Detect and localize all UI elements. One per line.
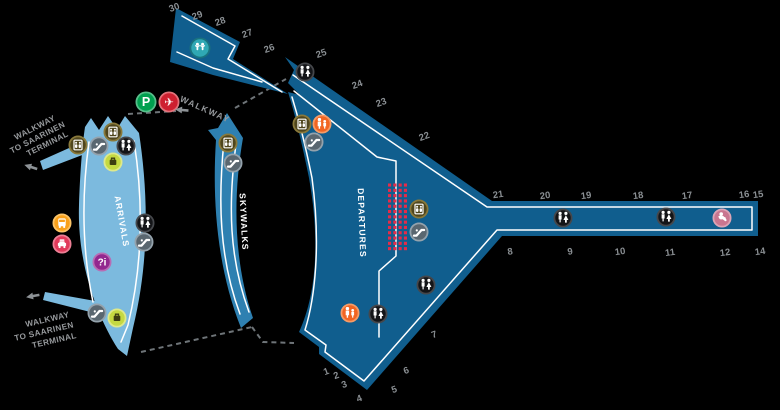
baggage-claim-icon (108, 309, 125, 326)
checkpoint-dot (388, 231, 391, 234)
checkpoint-dot (399, 184, 402, 187)
gate-number-12: 12 (719, 247, 731, 259)
checkpoint-dot (393, 189, 396, 192)
elevator-icon-circle (219, 134, 236, 151)
checkpoint-dot (404, 194, 407, 197)
checkpoint-dot (404, 199, 407, 202)
checkpoint-dot (388, 237, 391, 240)
play-area-icon-circle (190, 38, 209, 57)
elevator-icon (410, 200, 427, 217)
nursing-room-icon (713, 209, 730, 226)
gate-number-20: 20 (539, 190, 551, 202)
checkpoint-dot (393, 242, 396, 245)
checkpoint-dot (393, 226, 396, 229)
restroom-icon-circle (657, 208, 674, 225)
checkpoint-dot (388, 205, 391, 208)
checkpoint-dot (393, 247, 396, 250)
checkpoint-dot (399, 237, 402, 240)
gate-number-10: 10 (614, 246, 626, 258)
elevator-icon-circle (104, 123, 121, 140)
checkpoint-dot (399, 242, 402, 245)
elevator-icon (219, 134, 236, 151)
checkpoint-dot (393, 221, 396, 224)
checkpoint-dot (393, 237, 396, 240)
checkpoint-dot (388, 194, 391, 197)
elevator-icon (293, 115, 310, 132)
checkpoint-dot (399, 205, 402, 208)
checkpoint-dot (404, 221, 407, 224)
checkpoint-dot (404, 231, 407, 234)
escalator-icon (90, 137, 107, 154)
elevator-icon (69, 136, 86, 153)
checkpoint-dot (399, 231, 402, 234)
parking-icon (136, 92, 155, 111)
parking-icon-glyph (142, 95, 150, 109)
taxi-icon (53, 235, 70, 252)
family-restroom-icon (313, 115, 330, 132)
checkpoint-dot (404, 237, 407, 240)
terminal-map: P ✈ ?i (0, 0, 780, 410)
checkpoint-dot (404, 205, 407, 208)
bus-icon (53, 214, 70, 231)
checkpoint-dot (399, 226, 402, 229)
gate-number-16: 16 (738, 189, 750, 201)
checkpoint-dot (393, 210, 396, 213)
checkpoint-dot (404, 226, 407, 229)
terminal-map-svg: P ✈ ?i (0, 0, 780, 410)
flights-icon-glyph (164, 97, 174, 109)
checkpoint-dot (399, 215, 402, 218)
escalator-icon (135, 233, 152, 250)
elevator-icon-circle (293, 115, 310, 132)
checkpoint-dot (399, 199, 402, 202)
checkpoint-dot (404, 215, 407, 218)
checkpoint-dot (393, 205, 396, 208)
family-restroom-icon-circle (313, 115, 330, 132)
checkpoint-dot (404, 247, 407, 250)
checkpoint-dot (393, 184, 396, 187)
restroom-icon (117, 137, 134, 154)
checkpoint-dot (393, 199, 396, 202)
checkpoint-dot (388, 221, 391, 224)
restroom-icon (296, 63, 313, 80)
restroom-icon (369, 305, 386, 322)
baggage-claim-icon (104, 153, 121, 170)
escalator-icon (224, 154, 241, 171)
restroom-icon-circle (136, 214, 153, 231)
checkpoint-dot (399, 189, 402, 192)
checkpoint-dot (399, 194, 402, 197)
checkpoint-dot (404, 189, 407, 192)
restroom-icon-circle (117, 137, 134, 154)
information-icon-glyph (98, 258, 107, 269)
restroom-icon-circle (369, 305, 386, 322)
escalator-icon (88, 304, 105, 321)
elevator-icon-circle (69, 136, 86, 153)
gate-number-17: 17 (681, 190, 693, 202)
checkpoint-dot (404, 184, 407, 187)
checkpoint-dot (388, 184, 391, 187)
checkpoint-dot (388, 189, 391, 192)
restroom-icon (136, 214, 153, 231)
checkpoint-dot (388, 215, 391, 218)
escalator-icon (410, 223, 427, 240)
restroom-icon-circle (554, 209, 571, 226)
checkpoint-dot (388, 242, 391, 245)
information-icon (93, 253, 110, 270)
checkpoint-dot (393, 194, 396, 197)
family-restroom-icon-circle (341, 304, 358, 321)
restroom-icon (657, 208, 674, 225)
checkpoint-dot (388, 199, 391, 202)
play-area-icon (190, 38, 209, 57)
checkpoint-dot (388, 247, 391, 250)
gate-number-19: 19 (580, 190, 592, 202)
checkpoint-dot (399, 247, 402, 250)
restroom-icon-circle (296, 63, 313, 80)
checkpoint-dot (399, 221, 402, 224)
restroom-icon-circle (417, 276, 434, 293)
gate-number-18: 18 (632, 190, 644, 202)
checkpoint-dot (404, 242, 407, 245)
restroom-icon (554, 209, 571, 226)
elevator-icon-circle (410, 200, 427, 217)
family-restroom-icon (341, 304, 358, 321)
checkpoint-dot (399, 210, 402, 213)
restroom-icon (417, 276, 434, 293)
escalator-icon (305, 133, 322, 150)
checkpoint-dot (404, 210, 407, 213)
checkpoint-dot (388, 210, 391, 213)
elevator-icon (104, 123, 121, 140)
checkpoint-dot (388, 226, 391, 229)
checkpoint-dot (393, 215, 396, 218)
flights-icon (159, 92, 178, 111)
checkpoint-dot (393, 231, 396, 234)
